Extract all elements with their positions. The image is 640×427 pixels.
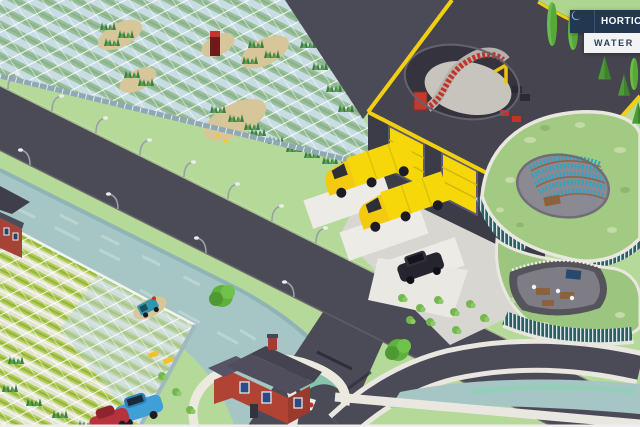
office-cutaway <box>509 260 607 315</box>
scene-illustration <box>0 0 640 427</box>
category-header[interactable]: HORTICULTURE <box>570 10 640 33</box>
category-title: HORTICULTURE <box>595 16 640 27</box>
subcategory-bar[interactable]: WATER <box>584 33 640 53</box>
category-panel[interactable]: HORTICULTURE WATER <box>570 10 640 53</box>
subcategory-label: WATER <box>584 38 634 48</box>
moon-icon[interactable] <box>570 10 595 33</box>
horticulture-scene: HORTICULTURE WATER <box>0 0 640 427</box>
